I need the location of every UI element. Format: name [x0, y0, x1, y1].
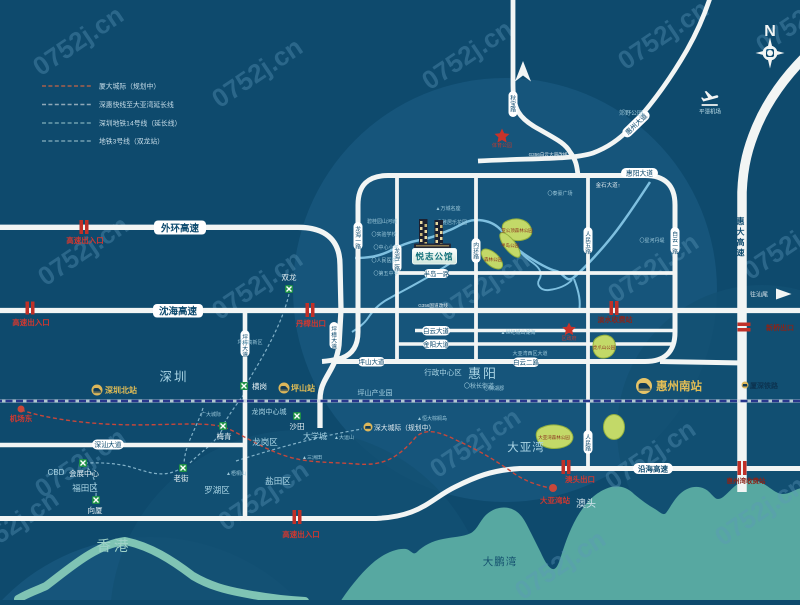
svg-text:沙田: 沙田: [290, 422, 305, 431]
svg-text:惠州湾收费站: 惠州湾收费站: [727, 476, 767, 485]
svg-text:森林公园: 森林公园: [484, 256, 502, 263]
svg-text:新桥出口: 新桥出口: [766, 323, 794, 332]
svg-text:深汕大道: 深汕大道: [94, 440, 121, 449]
svg-text:惠州南站: 惠州南站: [656, 379, 702, 393]
svg-text:区政府: 区政府: [561, 335, 576, 342]
svg-text:悦志公馆: 悦志公馆: [415, 252, 453, 262]
svg-text:CBD: CBD: [48, 468, 65, 477]
svg-text:会展中心: 会展中心: [69, 468, 99, 478]
svg-text:沿海高速: 沿海高速: [638, 464, 668, 474]
svg-text:▲大运山: ▲大运山: [334, 434, 354, 441]
svg-text:大学城: 大学城: [303, 431, 327, 441]
svg-text:沈海高速: 沈海高速: [159, 305, 198, 317]
svg-text:〇星河丹堤: 〇星河丹堤: [639, 237, 664, 244]
svg-text:人民路: 人民路: [585, 434, 591, 453]
svg-text:深圳: 深圳: [159, 370, 188, 384]
svg-text:香港: 香港: [97, 538, 132, 555]
svg-text:丹樟出口: 丹樟出口: [296, 318, 326, 328]
svg-text:惠阳大道: 惠阳大道: [626, 169, 653, 178]
svg-text:龙岗区: 龙岗区: [252, 437, 278, 447]
svg-text:澳头: 澳头: [576, 497, 596, 510]
svg-text:坪山产业园: 坪山产业园: [358, 388, 393, 397]
svg-text:广大城际: 广大城际: [201, 411, 221, 418]
svg-text:内环路: 内环路: [473, 241, 479, 261]
svg-text:G356白云大道改线: G356白云大道改线: [529, 151, 568, 158]
svg-text:大亚湾西区大道: 大亚湾西区大道: [512, 350, 547, 357]
svg-text:往汕尾: 往汕尾: [750, 291, 768, 299]
svg-text:白云二路: 白云二路: [513, 358, 540, 367]
svg-text:深圳地铁14号线（延长线）: 深圳地铁14号线（延长线）: [99, 119, 181, 128]
svg-text:惠阳: 惠阳: [468, 366, 498, 381]
svg-text:▲三洲田: ▲三洲田: [302, 455, 322, 461]
svg-text:〇实验学校: 〇实验学校: [371, 231, 396, 238]
svg-text:▲万城名座: ▲万城名座: [436, 205, 461, 212]
svg-text:高速出入口: 高速出入口: [12, 317, 50, 327]
svg-text:G356国道改线: G356国道改线: [418, 302, 448, 309]
svg-text:梅青: 梅青: [217, 431, 232, 441]
svg-text:大鹏湾: 大鹏湾: [483, 555, 518, 568]
svg-text:半岛一路: 半岛一路: [424, 269, 451, 278]
svg-text:大亚湾森林公园: 大亚湾森林公园: [538, 434, 570, 441]
svg-text:半岛公园: 半岛公园: [501, 242, 519, 249]
svg-text:体育公园: 体育公园: [492, 142, 512, 149]
svg-text:高速出入口: 高速出入口: [66, 235, 104, 245]
svg-text:金石大道↑: 金石大道↑: [596, 181, 621, 189]
svg-text:高速出入口: 高速出入口: [282, 529, 320, 539]
svg-text:坪樟大道: 坪樟大道: [331, 325, 337, 350]
svg-text:外环高速: 外环高速: [160, 222, 200, 234]
svg-text:深惠快线至大亚湾延长线: 深惠快线至大亚湾延长线: [99, 100, 174, 109]
svg-text:〇中心小学: 〇中心小学: [373, 244, 398, 251]
svg-text:淡水收费站: 淡水收费站: [598, 315, 633, 324]
svg-text:罗湖区: 罗湖区: [204, 485, 230, 495]
svg-text:厦深铁路: 厦深铁路: [749, 381, 779, 390]
svg-text:澳头出口: 澳头出口: [565, 474, 595, 484]
svg-text:平潭机场: 平潭机场: [699, 108, 722, 116]
svg-text:碧桂园山河城: 碧桂园山河城: [367, 218, 397, 225]
svg-text:坪山大道: 坪山大道: [359, 357, 386, 366]
svg-text:▲梧桐山: ▲梧桐山: [226, 470, 246, 477]
svg-text:〇御湖郡: 〇御湖郡: [484, 385, 504, 392]
svg-text:龙岗中心城: 龙岗中心城: [252, 407, 287, 416]
svg-text:〇第五中学: 〇第五中学: [373, 270, 398, 277]
svg-text:▲恒大棕榈岛: ▲恒大棕榈岛: [417, 415, 447, 422]
svg-text:老街: 老街: [174, 473, 189, 483]
svg-text:白云大道: 白云大道: [423, 326, 450, 335]
svg-text:双龙: 双龙: [282, 272, 297, 282]
svg-text:福田区: 福田区: [72, 483, 98, 493]
svg-text:亚公顶森林公园: 亚公顶森林公园: [501, 227, 533, 234]
svg-text:金阳大道: 金阳大道: [423, 340, 450, 349]
svg-text:机场东: 机场东: [10, 413, 33, 423]
svg-text:人民五路: 人民五路: [585, 231, 591, 255]
svg-text:横岗: 横岗: [252, 381, 267, 391]
svg-text:坪山高新区: 坪山高新区: [237, 339, 262, 346]
svg-text:白云一路: 白云一路: [672, 230, 678, 255]
svg-text:秋宝路: 秋宝路: [510, 94, 516, 114]
svg-text:N: N: [764, 23, 776, 40]
svg-text:坪山站: 坪山站: [291, 383, 315, 393]
svg-text:厦大城际（规划中）: 厦大城际（规划中）: [99, 82, 160, 91]
svg-text:〇人民医院: 〇人民医院: [371, 257, 396, 264]
svg-text:深大城际（规划中）: 深大城际（规划中）: [374, 423, 435, 432]
svg-text:盐田区: 盐田区: [265, 476, 291, 486]
svg-text:〇泰豪广场: 〇泰豪广场: [547, 190, 572, 197]
svg-text:向厦: 向厦: [88, 505, 103, 515]
svg-text:▲世纪城山湖海: ▲世纪城山湖海: [501, 329, 536, 336]
svg-text:郊野公园: 郊野公园: [619, 109, 643, 117]
svg-text:虎爪山公园: 虎爪山公园: [593, 344, 616, 351]
svg-text:龙海一路: 龙海一路: [355, 225, 361, 250]
svg-text:深圳北站: 深圳北站: [105, 385, 137, 395]
svg-text:地铁3号线（双龙站）: 地铁3号线（双龙站）: [99, 137, 164, 146]
svg-text:大亚湾: 大亚湾: [507, 440, 545, 454]
svg-text:大亚湾站: 大亚湾站: [540, 495, 570, 505]
svg-text:行政中心区: 行政中心区: [424, 367, 462, 377]
